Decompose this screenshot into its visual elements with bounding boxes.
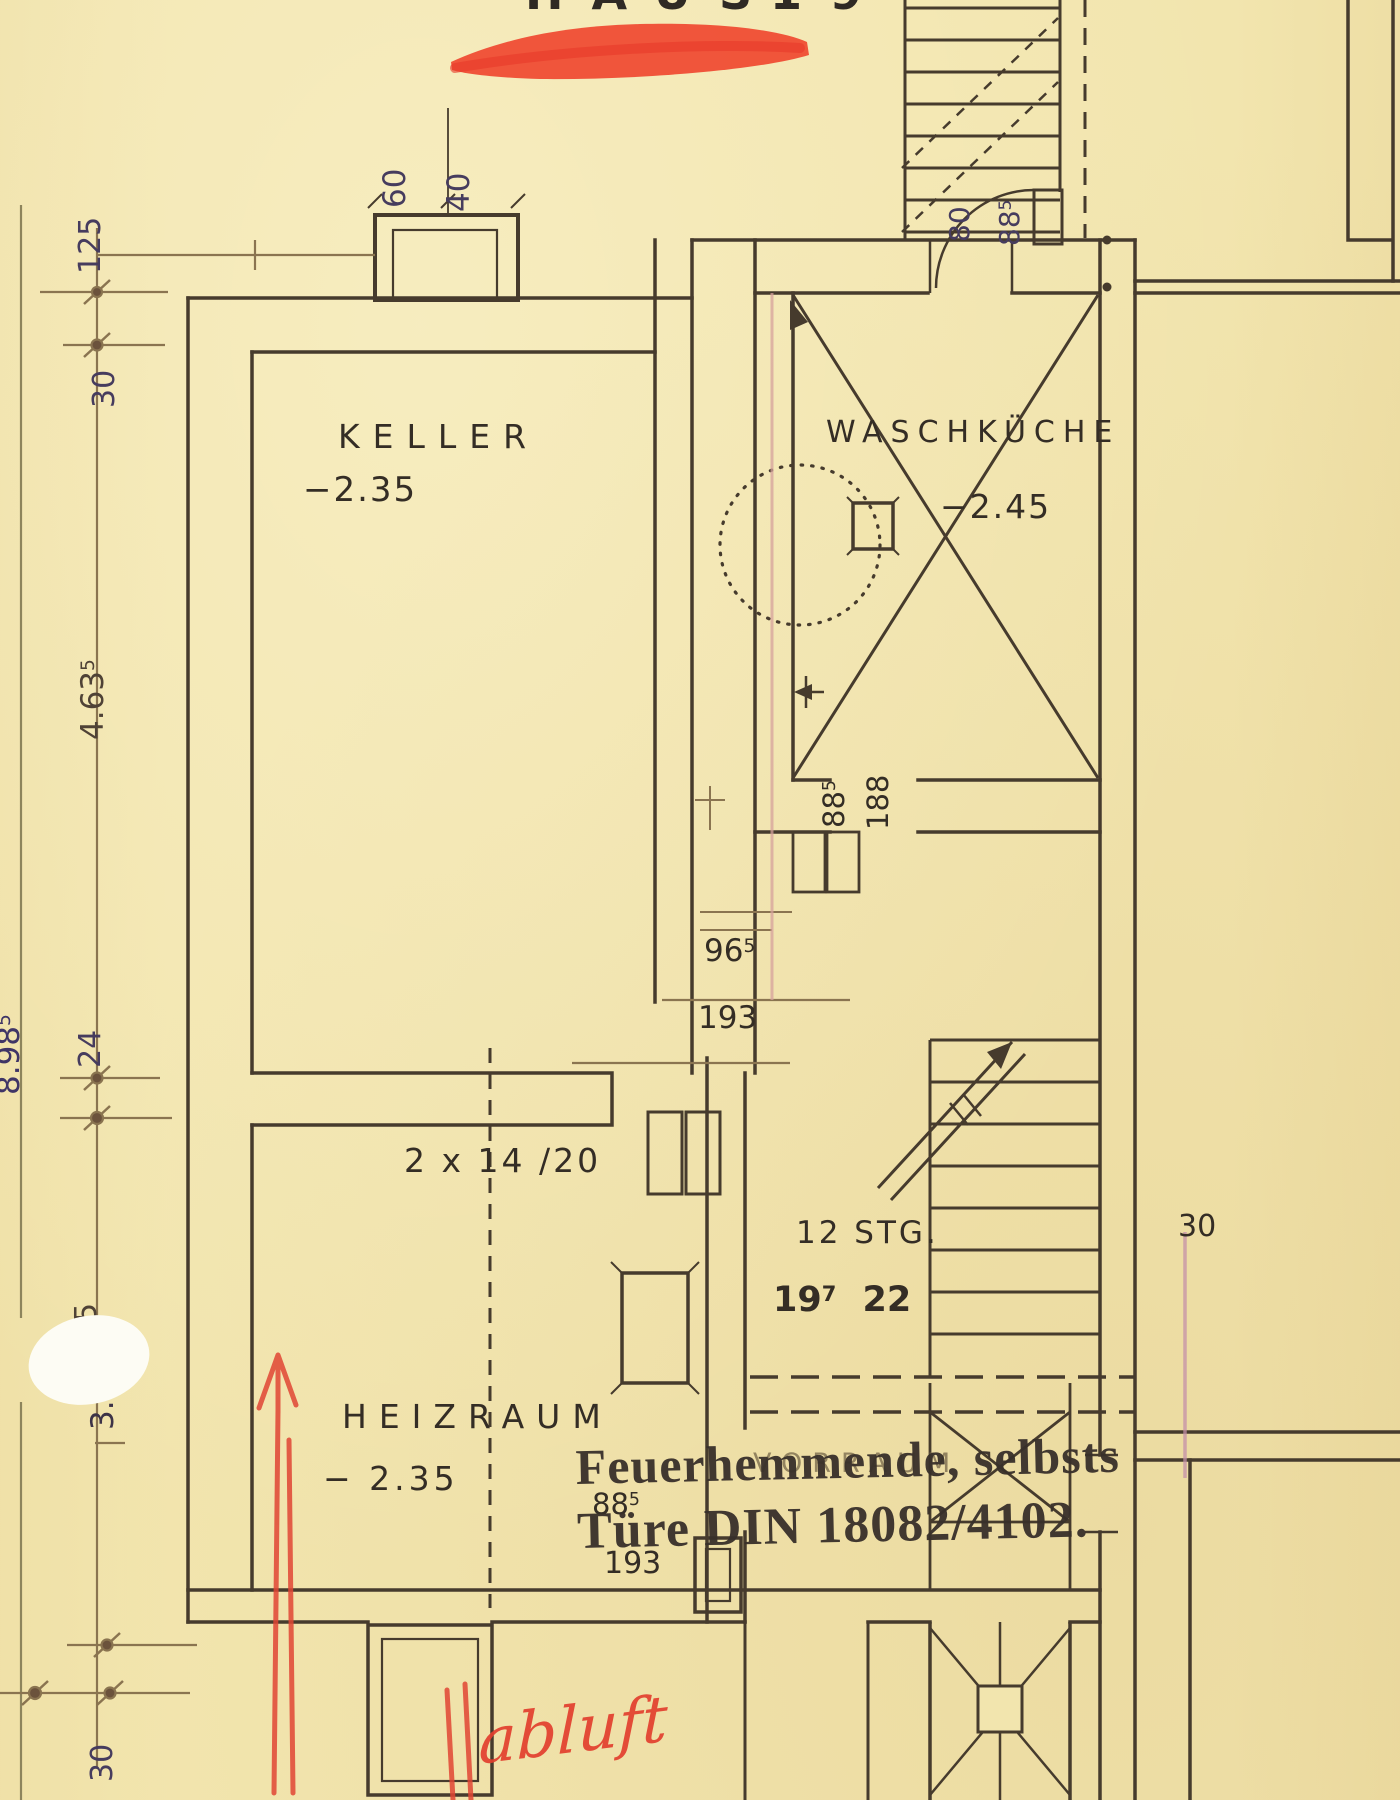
level-heizraum: − 2.35 [323, 1462, 459, 1495]
keller-door-width: 965 [704, 936, 755, 967]
stair-run: 22 [863, 1280, 912, 1320]
upper-door-leaf: 80 [946, 188, 974, 242]
waschkueche-door-width: 885 [820, 754, 849, 828]
keller-door-height: 193 [698, 1003, 757, 1034]
fire-door-stamp: Feuerhemmende, selbsts Türe DIN 18082/41… [575, 1426, 1122, 1561]
flue-spec: 2 x 14 /20 [404, 1144, 601, 1177]
sheet-title-clipped: HAUS 19 [440, 0, 870, 18]
upper-door-opening: 885 [996, 182, 1024, 246]
stair-rise-sup: 7 [822, 1282, 837, 1306]
dim-30-top: 30 [90, 350, 120, 408]
vorraum-door-height: 193 [604, 1549, 661, 1579]
level-waschkueche: −2.45 [940, 490, 1051, 523]
chimney-dim-60: 60 [380, 142, 411, 208]
waschkueche-door-height: 188 [864, 760, 893, 830]
heizraum-symbols [611, 1112, 720, 1394]
dim-30-bottom: 30 [88, 1722, 118, 1782]
room-label-keller: KELLER [338, 420, 539, 453]
stair-count: 12 STG. [796, 1218, 939, 1249]
room-label-heizraum: HEIZRAUM [342, 1400, 613, 1433]
dim-4635: 4.635 [78, 618, 109, 740]
dim-24: 24 [76, 1004, 106, 1068]
dim-total-898: 8.985 [0, 953, 25, 1095]
dim-30-right: 30 [1178, 1212, 1216, 1242]
small-dim-arrow [794, 684, 812, 700]
chimney-dim-40: 40 [444, 148, 475, 212]
level-keller: −2.35 [303, 473, 417, 507]
room-label-waschkueche: WASCHKÜCHE [826, 418, 1120, 448]
sheet-number: 19 [770, 0, 870, 18]
dim-125: 125 [76, 194, 106, 274]
basement-floorplan-scan: HAUS 19 KELLER −2.35 WASCHKÜCHE −2.45 HE… [0, 0, 1400, 1800]
stair-rise-run: 197 22 [773, 1283, 911, 1318]
stair-rise: 19 [773, 1280, 822, 1320]
stamp-line1: Feuerhemmende, selbsts [575, 1426, 1120, 1496]
stair-lower [878, 1040, 1100, 1377]
sheet-title: HAUS [525, 0, 780, 18]
